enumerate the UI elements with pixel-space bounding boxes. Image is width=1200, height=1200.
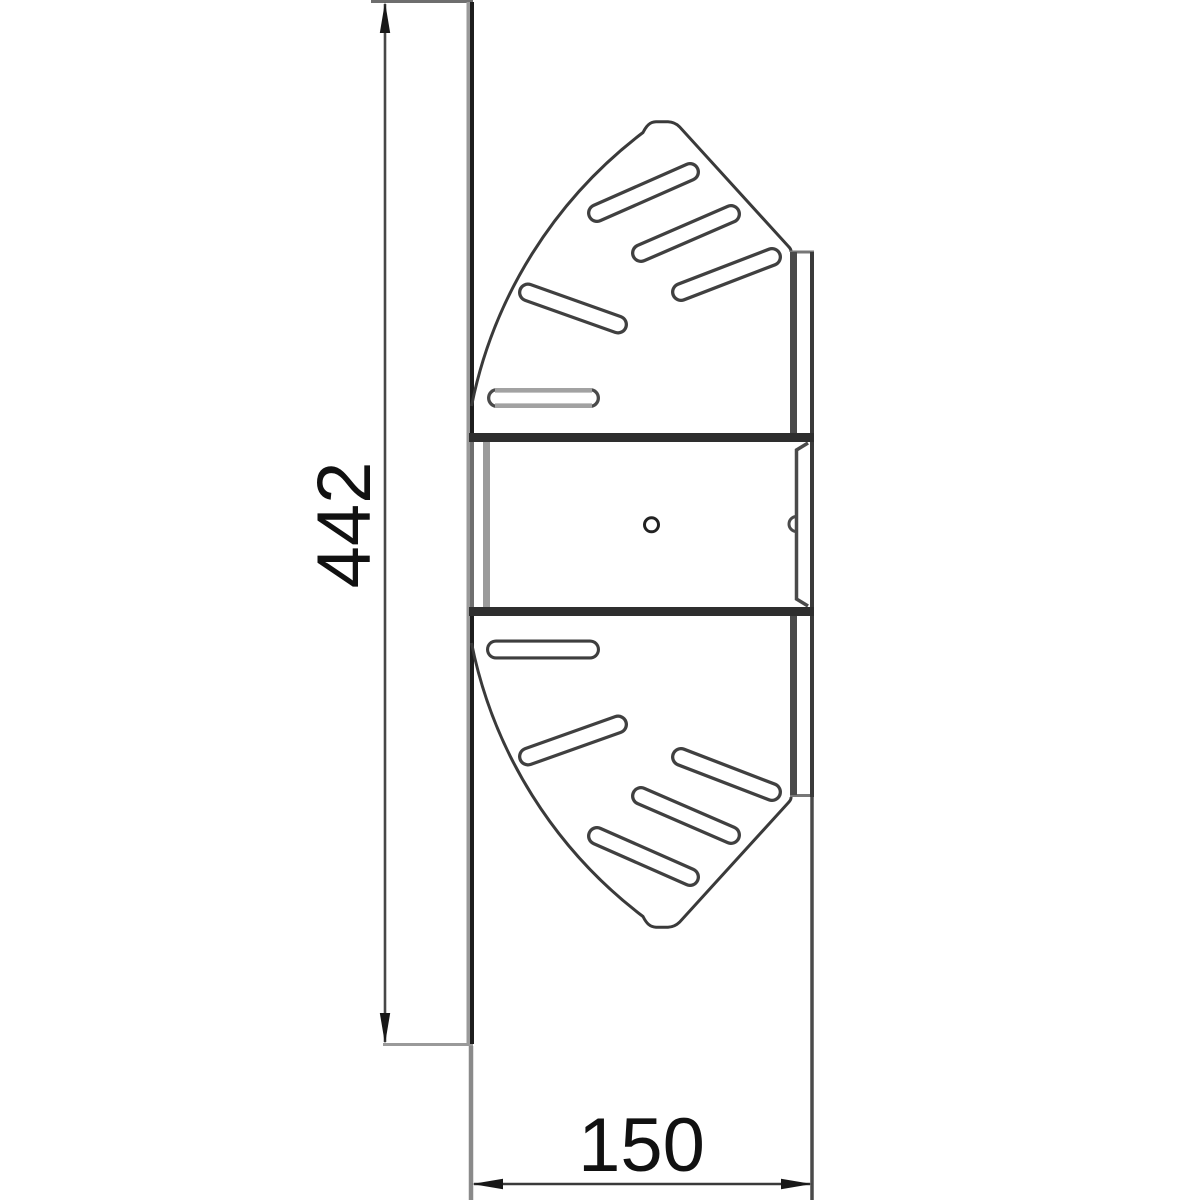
svg-text:150: 150 — [578, 1103, 705, 1188]
svg-text:442: 442 — [302, 462, 387, 589]
